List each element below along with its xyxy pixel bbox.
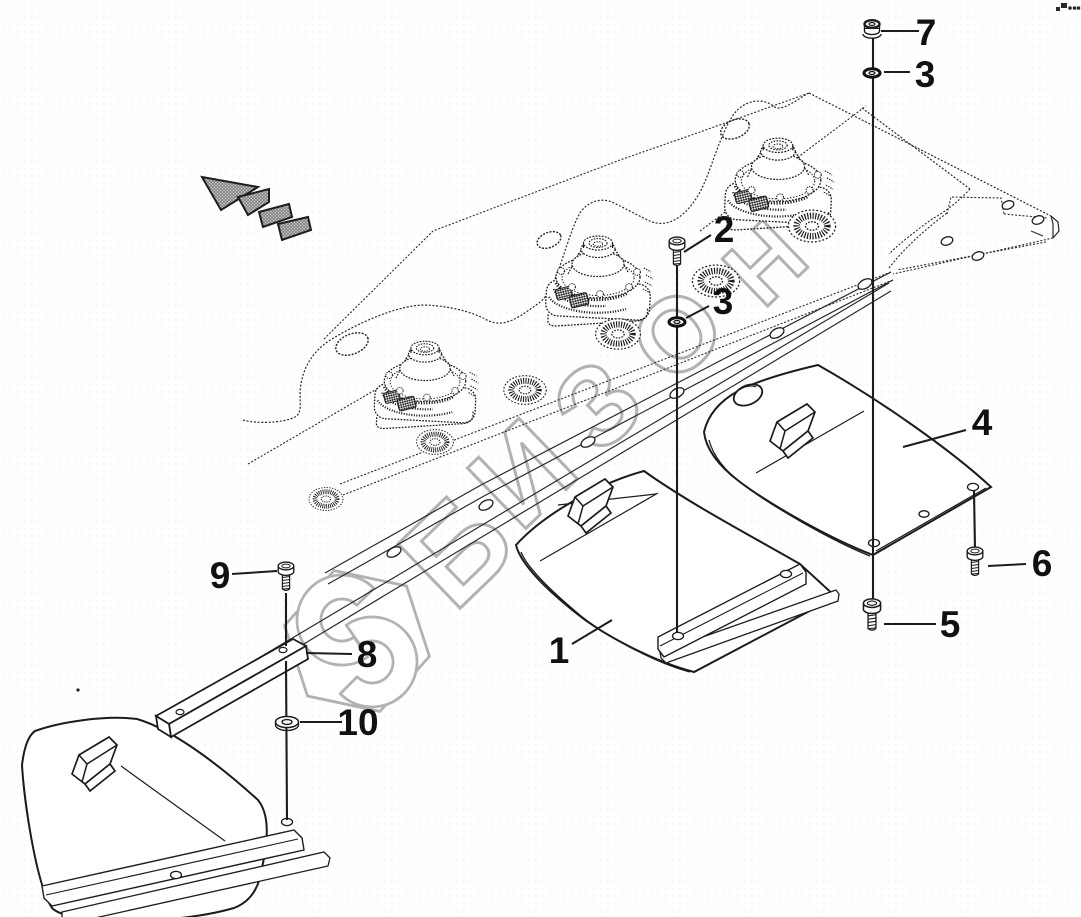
svg-text:4: 4 (972, 402, 993, 443)
svg-text:3: 3 (713, 281, 734, 322)
svg-text:7: 7 (916, 12, 937, 53)
svg-text:9: 9 (210, 555, 231, 596)
svg-text:3: 3 (915, 54, 936, 95)
svg-text:6: 6 (1032, 543, 1053, 584)
svg-text:2: 2 (714, 209, 735, 250)
svg-text:10: 10 (337, 702, 378, 743)
svg-text:5: 5 (940, 604, 961, 645)
svg-text:1: 1 (549, 630, 570, 671)
svg-text:8: 8 (357, 634, 378, 675)
